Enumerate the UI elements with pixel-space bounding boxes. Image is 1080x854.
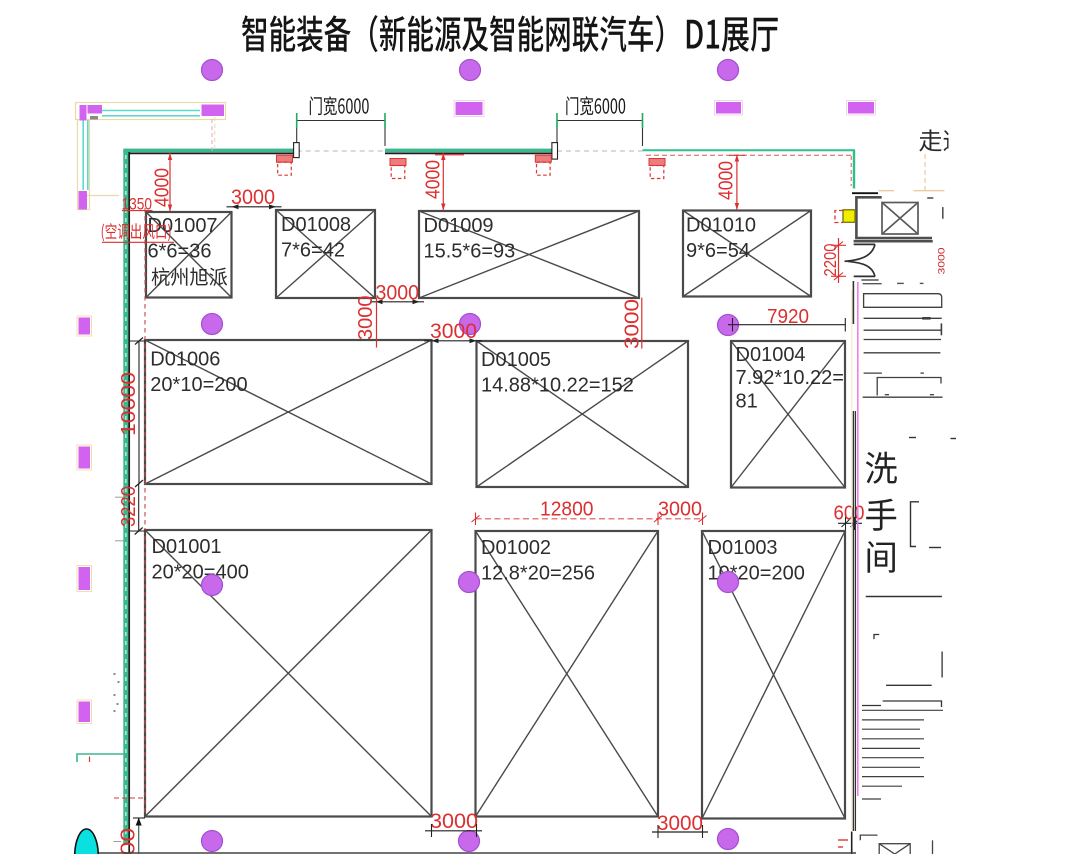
svg-text:2200: 2200 (820, 243, 840, 276)
svg-text:4000: 4000 (423, 160, 445, 199)
svg-text:3000: 3000 (622, 299, 644, 349)
svg-text:3220: 3220 (118, 486, 140, 527)
svg-text:600: 600 (834, 503, 865, 525)
svg-text:4000: 4000 (716, 161, 738, 200)
svg-text:10000: 10000 (118, 372, 140, 436)
svg-text:12800: 12800 (540, 499, 594, 521)
svg-text:3000: 3000 (658, 499, 702, 521)
svg-text:3000: 3000 (430, 810, 478, 833)
svg-text:3000: 3000 (937, 248, 948, 275)
svg-text:3000: 3000 (355, 296, 377, 341)
